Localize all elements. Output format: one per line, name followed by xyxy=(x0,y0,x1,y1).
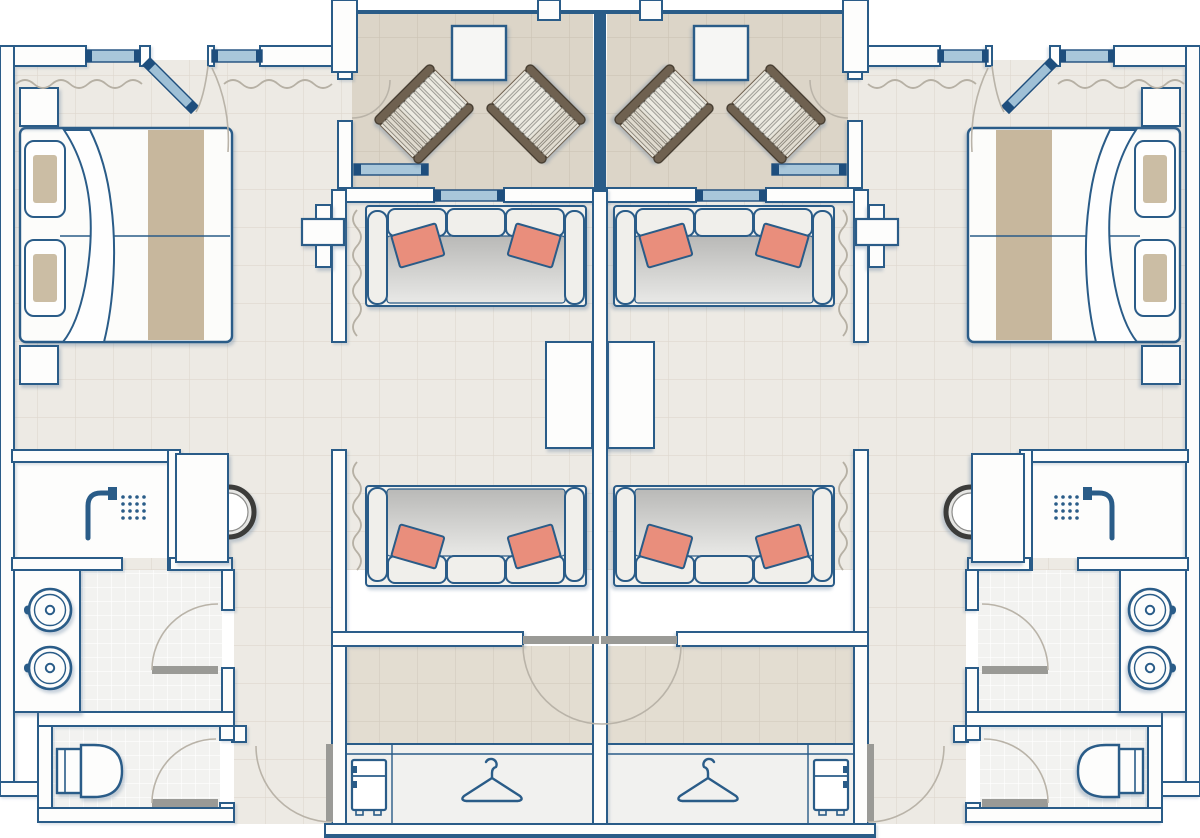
wall-wc xyxy=(220,726,234,740)
wall-party xyxy=(593,190,607,824)
window-icon xyxy=(86,50,140,62)
door-leaf-bathroom xyxy=(152,666,218,674)
sofa-lower xyxy=(366,486,586,586)
wall-bathroom xyxy=(222,570,234,610)
wall-window xyxy=(504,188,593,202)
railing-post xyxy=(538,0,560,20)
patio-table-icon xyxy=(452,26,506,80)
wall-shower xyxy=(12,558,122,570)
bed-runner xyxy=(148,130,204,340)
nightstand-icon xyxy=(20,88,58,126)
wall-exterior-left xyxy=(0,46,14,796)
desk-icon xyxy=(176,454,228,562)
toilet-icon xyxy=(57,745,122,797)
wall-terrace-divider xyxy=(594,10,606,192)
fridge-icon xyxy=(352,760,386,815)
wall-hall-top xyxy=(332,632,523,646)
pillow-icon xyxy=(25,240,65,316)
window-icon xyxy=(212,50,262,62)
wall-wc xyxy=(38,712,234,726)
wall-window xyxy=(338,188,434,202)
wardrobe xyxy=(346,744,593,826)
nightstand-icon xyxy=(20,346,58,384)
wall-exterior-bottom-edge xyxy=(325,834,875,838)
railing-icon xyxy=(357,10,843,14)
wall-wc xyxy=(38,712,52,822)
floor-main-lower xyxy=(234,570,332,824)
wall-bedroom-divider xyxy=(332,190,346,342)
pillow-icon xyxy=(25,141,65,217)
wall-living-divider xyxy=(332,450,346,632)
door-leaf-hall xyxy=(326,744,333,822)
double-bed-icon xyxy=(20,128,232,342)
door-leaf-wc xyxy=(152,799,218,807)
sofa-upper xyxy=(366,206,586,306)
wall-terrace-side xyxy=(338,121,352,190)
wall-hall-side xyxy=(332,646,346,826)
terrace-pillar xyxy=(843,0,868,72)
wall-wc xyxy=(38,808,234,822)
terrace-pillar xyxy=(332,0,357,72)
door-leaf-entry-left xyxy=(523,636,599,644)
floor-plan-canvas xyxy=(0,0,1200,838)
wall-shower xyxy=(12,450,180,462)
floor-plan xyxy=(0,0,1200,838)
door-leaf-entry-right xyxy=(601,636,677,644)
railing-post xyxy=(640,0,662,20)
floor-bathroom-tile xyxy=(80,570,222,712)
console-icon xyxy=(546,342,592,448)
